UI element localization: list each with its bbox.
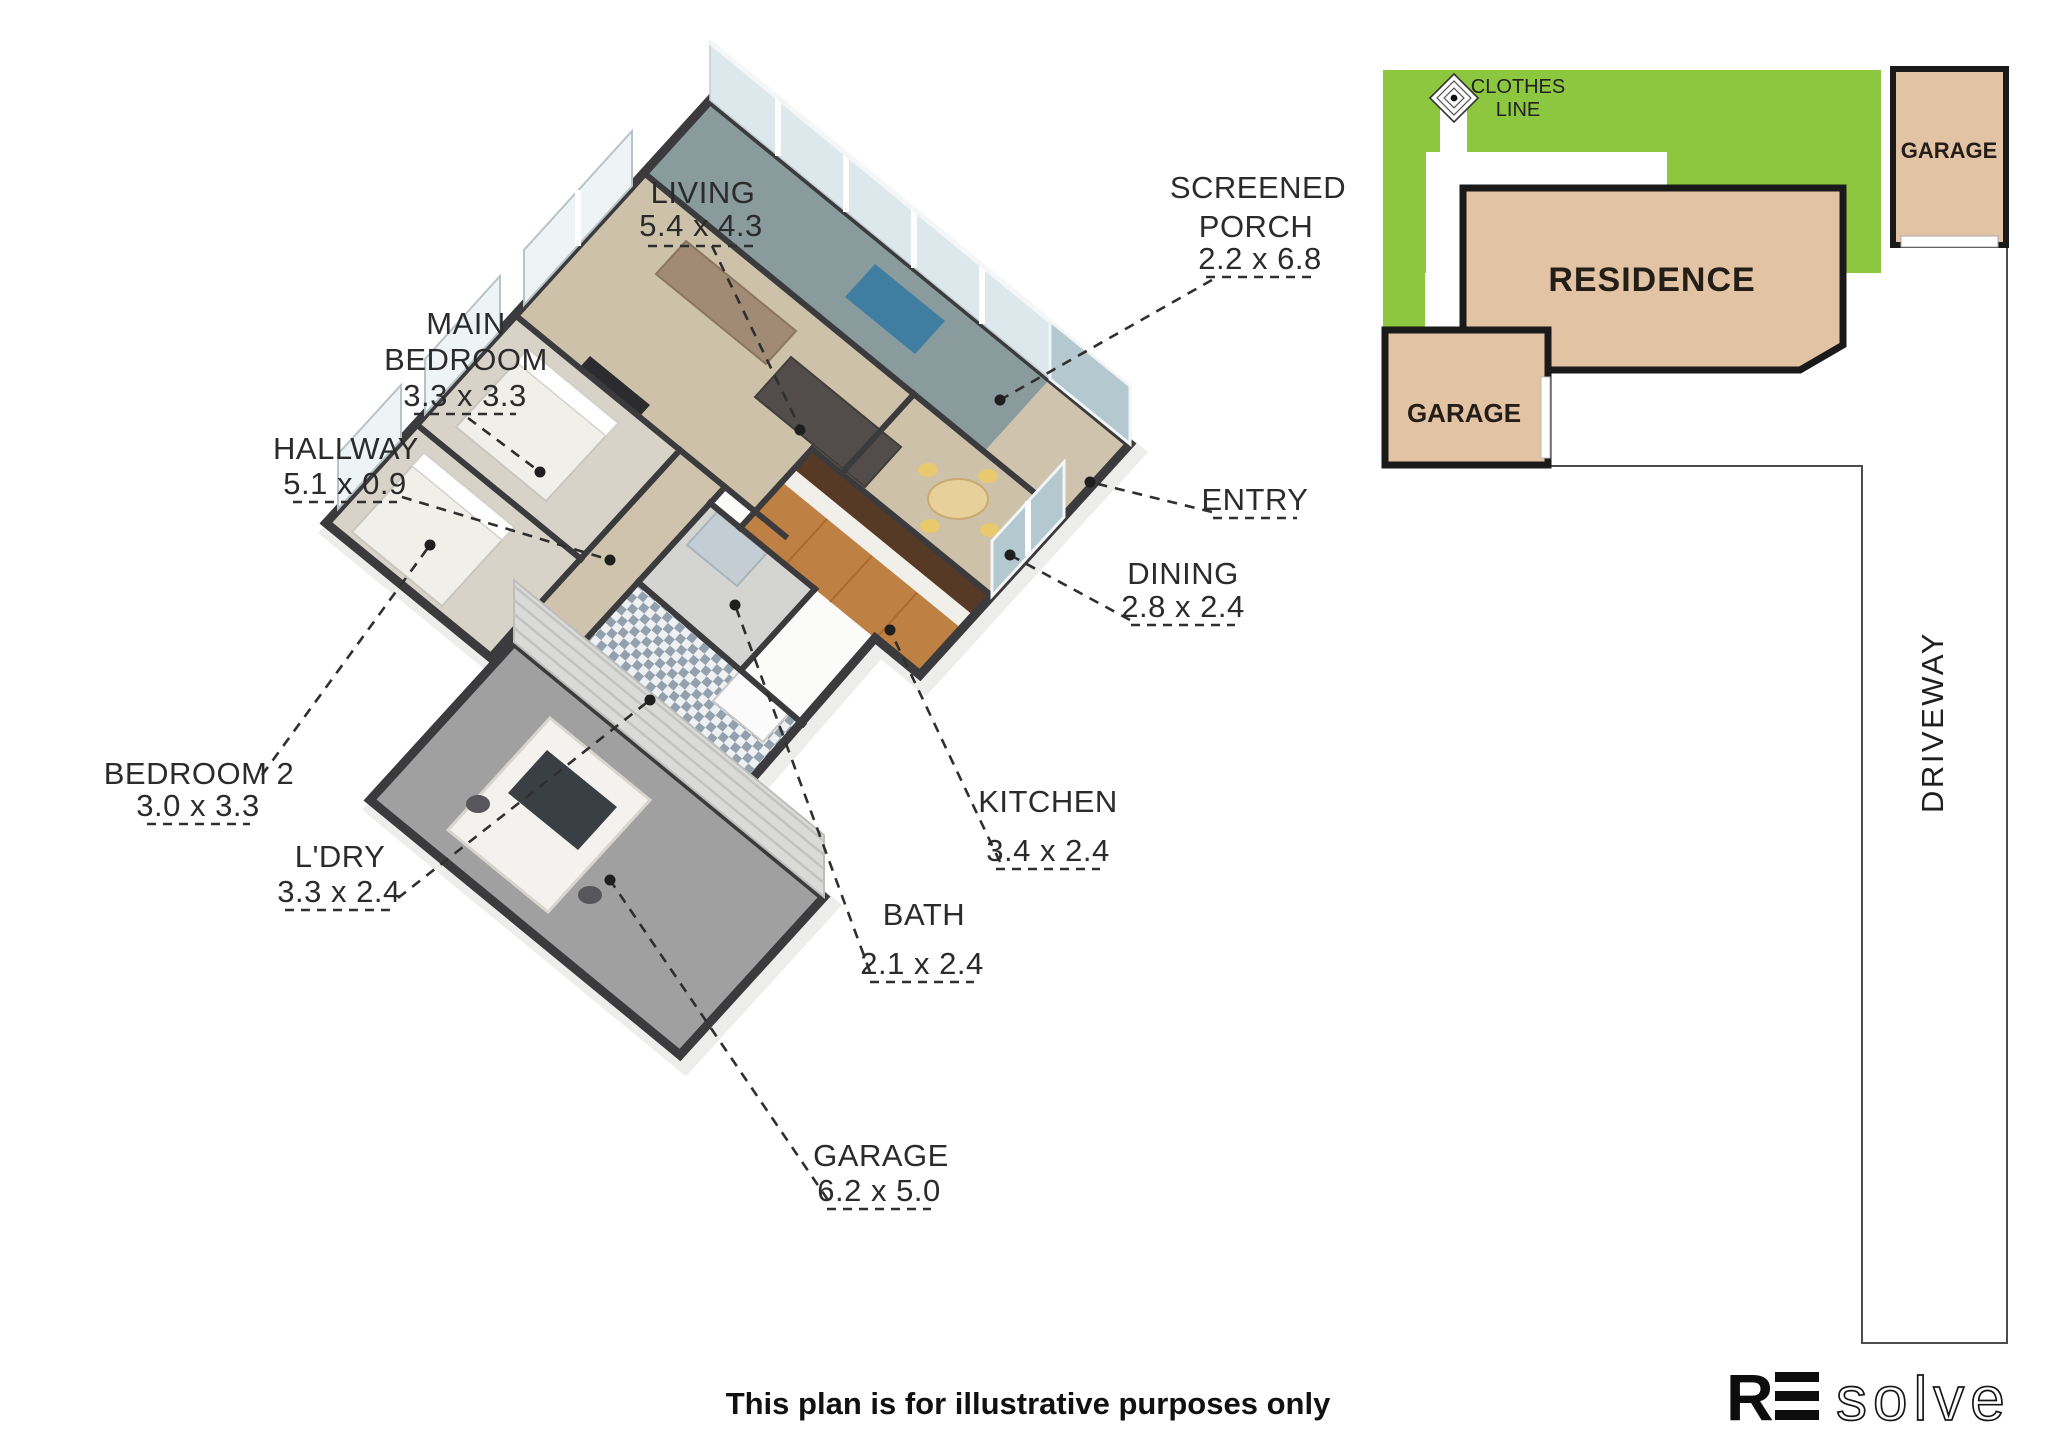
- car-wheel: [578, 886, 602, 904]
- label-laundry-dims: 3.3 x 2.4: [277, 874, 400, 909]
- logo-e-bars-icon: [1775, 1372, 1819, 1420]
- driveway-label: DRIVEWAY: [1915, 631, 1950, 813]
- label-main-bedroom-line1: MAIN: [426, 306, 506, 341]
- disclaimer-text: This plan is for illustrative purposes o…: [726, 1386, 1331, 1421]
- garage-rear-door: [1901, 236, 1998, 247]
- label-dining-dims: 2.8 x 2.4: [1121, 589, 1244, 624]
- label-bedroom2: BEDROOM 2: [104, 756, 295, 791]
- garage-rear-label: GARAGE: [1901, 138, 1998, 163]
- label-kitchen-dims: 3.4 x 2.4: [986, 833, 1109, 868]
- dining-chair: [920, 519, 940, 533]
- resolve-logo: R solve: [1726, 1360, 2011, 1434]
- label-entry: ENTRY: [1201, 482, 1308, 517]
- label-bedroom2-dims: 3.0 x 3.3: [136, 788, 259, 823]
- label-living: LIVING: [651, 175, 756, 210]
- label-bath: BATH: [883, 897, 965, 932]
- label-dining: DINING: [1127, 556, 1239, 591]
- label-porch-line1: SCREENED: [1170, 170, 1346, 205]
- dining-chair: [978, 469, 998, 483]
- site-plan: CLOTHES LINE RESIDENCE GARAGE GARAGE DRI…: [1383, 69, 2007, 1343]
- clothes-line-label-2: LINE: [1496, 99, 1540, 121]
- car-wheel: [466, 795, 490, 813]
- label-porch-line2: PORCH: [1199, 209, 1313, 244]
- logo-prefix: R: [1726, 1360, 1774, 1434]
- label-kitchen: KITCHEN: [978, 784, 1118, 819]
- label-bath-dims: 2.1 x 2.4: [860, 946, 983, 981]
- label-living-dims: 5.4 x 4.3: [639, 208, 762, 243]
- dining-table: [928, 479, 988, 519]
- floor-plan-3d: LIVING 5.4 x 4.3 SCREENED PORCH 2.2 x 6.…: [104, 42, 1346, 1209]
- garage-front-label: GARAGE: [1407, 398, 1521, 428]
- dining-chair: [918, 463, 938, 477]
- label-garage: GARAGE: [813, 1138, 949, 1173]
- logo-suffix: solve: [1836, 1365, 2011, 1434]
- page: LIVING 5.4 x 4.3 SCREENED PORCH 2.2 x 6.…: [0, 0, 2048, 1451]
- label-main-bedroom-dims: 3.3 x 3.3: [403, 378, 526, 413]
- clothes-line-label-1: CLOTHES: [1471, 76, 1565, 98]
- label-garage-dims: 6.2 x 5.0: [817, 1173, 940, 1208]
- residence-label: RESIDENCE: [1548, 261, 1755, 299]
- label-hallway-dims: 5.1 x 0.9: [283, 466, 406, 501]
- label-laundry: L'DRY: [295, 839, 386, 874]
- floorplan-graphic: LIVING 5.4 x 4.3 SCREENED PORCH 2.2 x 6.…: [0, 0, 2048, 1451]
- label-hallway: HALLWAY: [273, 431, 419, 466]
- label-porch-dims: 2.2 x 6.8: [1198, 241, 1321, 276]
- label-main-bedroom-line2: BEDROOM: [384, 342, 548, 377]
- garage-front-door: [1541, 377, 1550, 458]
